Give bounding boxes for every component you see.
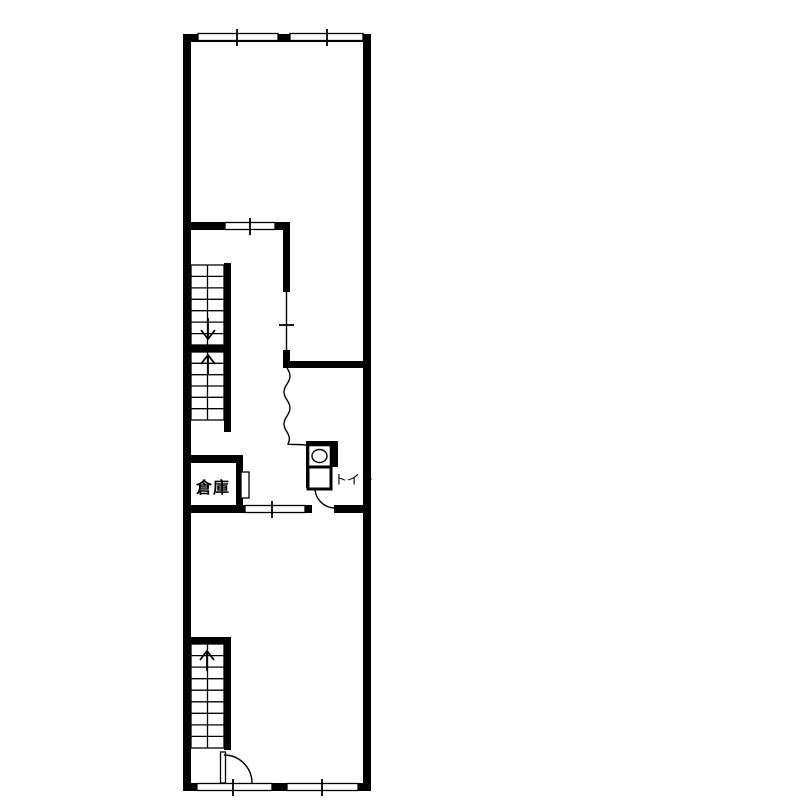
wall-storage-top: [183, 455, 243, 463]
staircase-middle-lower-flight: [191, 352, 224, 420]
window-top-left: [198, 34, 278, 41]
stair-up-arrow-icon: [200, 651, 214, 671]
outer-walls: [183, 34, 371, 791]
floorplan-drawing: 倉庫 トイレ: [0, 0, 800, 800]
toilet-fixture-icon: [308, 467, 331, 489]
entrance-door-arc: [224, 755, 252, 783]
staircase-middle-upper-flight: [191, 265, 224, 345]
wall-bottom-stair-rail: [224, 637, 231, 750]
curtain-wavy-line: [284, 368, 306, 445]
staircase-bottom: [191, 644, 224, 748]
storage-door: [241, 472, 249, 498]
toilet-area: トイレ: [306, 441, 373, 514]
storage-room: 倉庫: [195, 472, 249, 498]
storage-label: 倉庫: [195, 478, 230, 497]
wall-right-room-bottom: [283, 361, 371, 368]
wall-stair-separator: [183, 345, 231, 352]
floorplan-page: 倉庫 トイレ: [0, 0, 800, 800]
wall-left: [183, 34, 191, 791]
partition-opening: [279, 292, 294, 355]
stair-up-arrow-icon: [201, 355, 215, 375]
entrance-door: [221, 752, 253, 783]
windows: [197, 29, 363, 796]
wall-right: [363, 34, 371, 791]
wall-vertical-stub-upper: [283, 222, 290, 292]
stair-down-arrow-icon: [201, 318, 215, 339]
window-mid-divider: [245, 506, 305, 513]
wall-middle-stair-rail: [224, 263, 231, 432]
entrance-door-leaf: [221, 752, 226, 783]
toilet-door-opening: [312, 504, 334, 514]
window-bottom-left: [197, 784, 272, 791]
wall-bottom-stair-top: [183, 637, 231, 644]
toilet-label: トイレ: [334, 473, 373, 488]
